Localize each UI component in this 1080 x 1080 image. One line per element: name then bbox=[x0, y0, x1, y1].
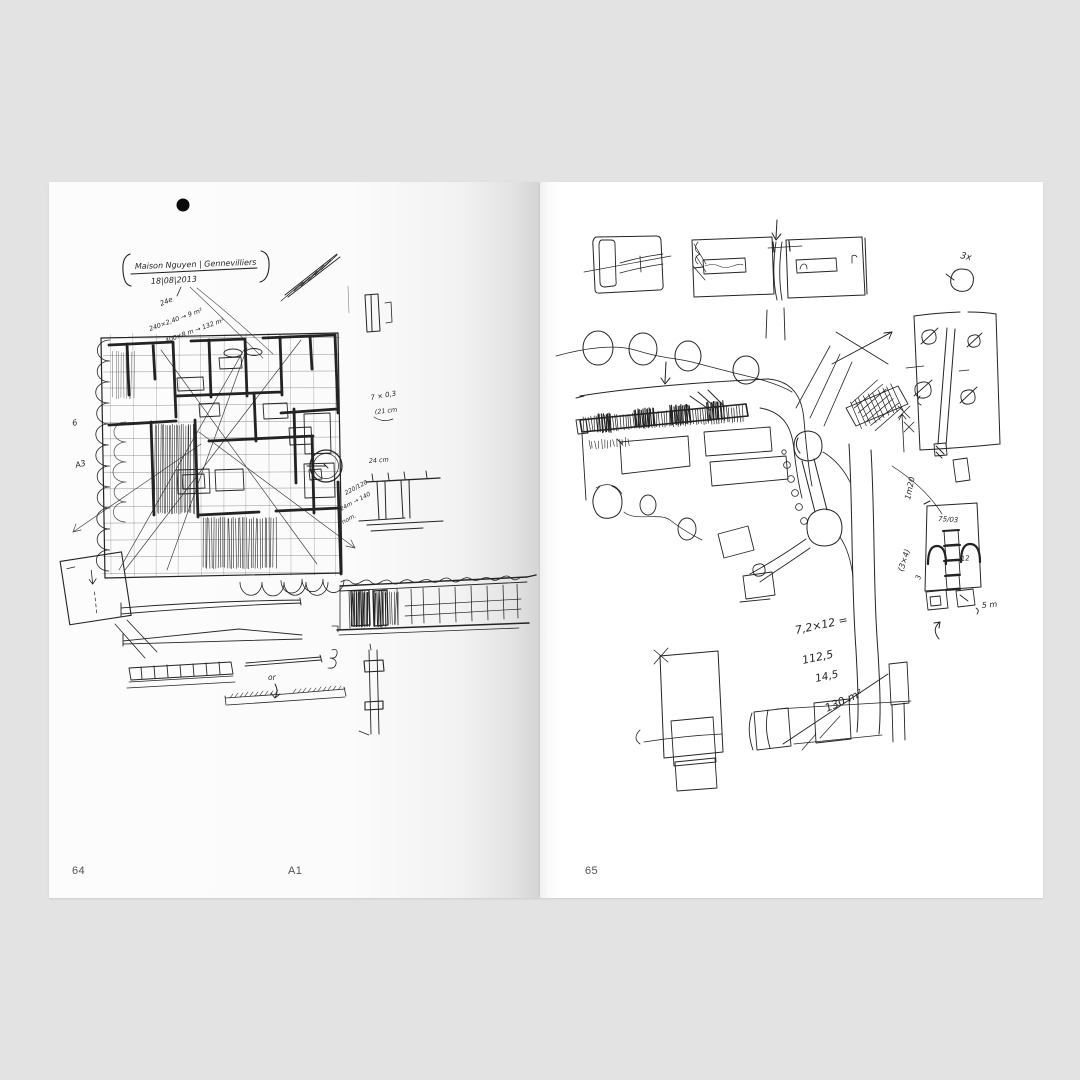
ladder-strip bbox=[127, 662, 235, 688]
calc-expression: 7,2×12 = bbox=[794, 613, 849, 637]
thin-strip bbox=[245, 655, 322, 666]
sketch-date: 18|08|2013 bbox=[151, 275, 198, 286]
black-dot bbox=[177, 199, 190, 212]
curl-mark bbox=[328, 650, 337, 669]
tree-circle-lone bbox=[946, 269, 973, 291]
left-page: Maison Nguyen | Gennevilliers 18|08|2013… bbox=[49, 182, 540, 898]
dim-75-03: 75/03 bbox=[938, 515, 959, 524]
parking-cars bbox=[926, 589, 978, 614]
or-note: or bbox=[268, 673, 277, 682]
floor-plan bbox=[73, 333, 355, 596]
elevation-profiles bbox=[121, 598, 302, 646]
top-arrow bbox=[772, 220, 781, 240]
plan-hatch-corner bbox=[113, 351, 135, 399]
plan-grid-horizontal bbox=[102, 338, 340, 574]
block-sketch-1 bbox=[584, 236, 671, 293]
road-sweep bbox=[760, 379, 812, 498]
calc-area: 130 m² bbox=[823, 687, 865, 715]
margin-a3: A3 bbox=[73, 459, 86, 471]
dot-chain bbox=[782, 450, 808, 525]
plan-scallops-left-2 bbox=[113, 422, 126, 522]
parking-detail: 1m20 75/03 12 3 5 m (3×4) bbox=[892, 466, 998, 639]
dim-1m20: 1m20 bbox=[903, 476, 917, 500]
beam-detail bbox=[359, 471, 443, 531]
roof-hatch-sketch bbox=[281, 254, 349, 313]
dim-21cm: (21 cm bbox=[374, 406, 397, 416]
book-spread: Maison Nguyen | Gennevilliers 18|08|2013… bbox=[0, 0, 1080, 1080]
plan-hatch-stairs bbox=[154, 424, 194, 514]
strip-cross-marks bbox=[898, 406, 914, 452]
plate-label: A1 bbox=[288, 865, 302, 877]
window-detail bbox=[365, 294, 392, 332]
or-arrow bbox=[271, 684, 280, 698]
serrated-strip bbox=[225, 686, 346, 705]
dim-3: 3 bbox=[914, 574, 923, 580]
right-page-number: 65 bbox=[585, 865, 598, 877]
strip-hatch-dark-2 bbox=[634, 408, 655, 429]
dim-24cm: 24 cm bbox=[369, 456, 389, 465]
site-building-strip bbox=[576, 379, 812, 500]
facade-elevation bbox=[332, 575, 536, 635]
facade-panel-hatch-2 bbox=[374, 591, 386, 627]
right-page: 3x bbox=[540, 182, 1043, 898]
tree-chain bbox=[556, 331, 792, 392]
calculations: 7,2×12 = 112,5 14,5 130 m² bbox=[783, 613, 888, 750]
dim-nom: nom. bbox=[341, 512, 358, 525]
parking-leader bbox=[892, 466, 942, 514]
right-page-sketch: 3x bbox=[540, 182, 1043, 897]
block-sketch-2 bbox=[692, 237, 774, 297]
cross-arrow bbox=[832, 332, 892, 364]
calc-underline bbox=[783, 674, 888, 744]
left-page-sketch: Maison Nguyen | Gennevilliers 18|08|2013… bbox=[49, 182, 540, 898]
calc-result-2: 14,5 bbox=[814, 668, 840, 685]
note-24e: 24e bbox=[159, 295, 174, 307]
small-circle bbox=[753, 564, 765, 576]
plan-scallops-bottom-2 bbox=[281, 579, 344, 593]
site-rect-row bbox=[617, 427, 788, 486]
planted-strip bbox=[898, 312, 1000, 482]
dim-24m-140: 24m → 140 bbox=[339, 491, 372, 513]
note-tick bbox=[177, 287, 181, 296]
tilted-rect bbox=[718, 526, 754, 558]
curl-arrow bbox=[934, 622, 940, 639]
block-divider bbox=[766, 241, 802, 340]
dim-7x03: 7 × 0,3 bbox=[370, 390, 397, 402]
calc-result-1: 112,5 bbox=[801, 648, 835, 667]
strip-under-ticks bbox=[589, 437, 629, 450]
dim-3x4: (3×4) bbox=[896, 548, 912, 573]
crosshatch-patch bbox=[846, 379, 908, 432]
tree-chain-arrow bbox=[661, 362, 670, 384]
plan-hatch-terrace bbox=[203, 517, 276, 569]
column-detail bbox=[359, 644, 384, 735]
lower-trees bbox=[593, 485, 754, 558]
detail-square-leader bbox=[115, 620, 157, 658]
dim-5m: 5 m bbox=[981, 600, 997, 610]
dim-12: 12 bbox=[960, 554, 970, 563]
road-arm-left bbox=[750, 539, 810, 582]
margin-6: 6 bbox=[71, 418, 78, 428]
bottom-left-rect bbox=[636, 648, 723, 791]
left-page-number: 64 bbox=[72, 865, 85, 877]
dim-21cm-underline bbox=[374, 417, 393, 421]
facade-panel-hatch-1 bbox=[351, 591, 369, 627]
count-3x: 3x bbox=[959, 251, 973, 263]
roundabout-2 bbox=[807, 509, 842, 546]
